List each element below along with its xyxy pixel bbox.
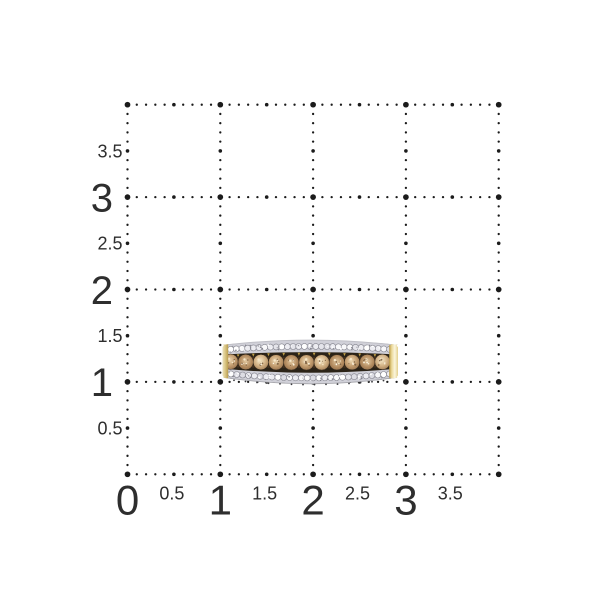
svg-text:0.5: 0.5 xyxy=(97,419,122,439)
svg-text:0: 0 xyxy=(116,477,139,524)
svg-text:3: 3 xyxy=(91,176,113,220)
svg-text:2.5: 2.5 xyxy=(345,484,370,504)
svg-text:1.5: 1.5 xyxy=(97,326,122,346)
svg-text:1: 1 xyxy=(91,361,113,405)
svg-text:3.5: 3.5 xyxy=(438,484,463,504)
svg-text:3: 3 xyxy=(394,477,417,524)
svg-text:1.5: 1.5 xyxy=(252,484,277,504)
svg-text:0.5: 0.5 xyxy=(159,484,184,504)
svg-text:1: 1 xyxy=(209,477,232,524)
svg-text:2: 2 xyxy=(301,477,324,524)
svg-text:3.5: 3.5 xyxy=(97,141,122,161)
svg-text:2: 2 xyxy=(91,269,113,313)
svg-text:2.5: 2.5 xyxy=(97,234,122,254)
